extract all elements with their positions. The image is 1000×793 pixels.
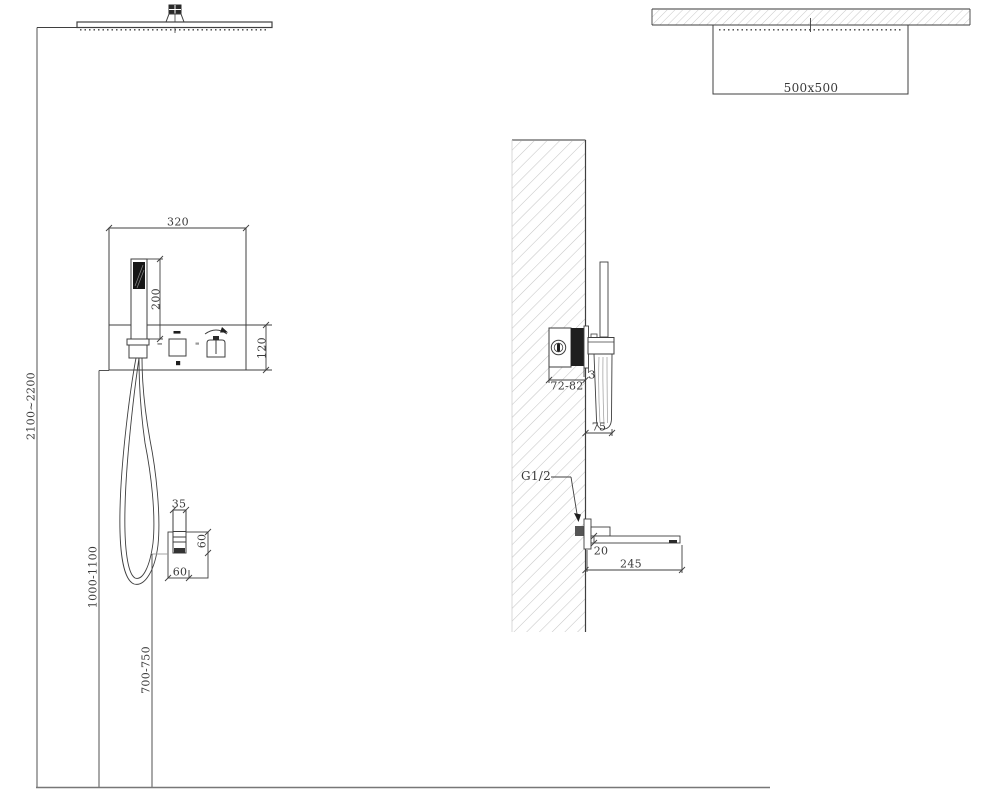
showerhead-front — [77, 5, 272, 33]
shower-installation-drawing: 320 200 120 2100~2200 1000-1100 700-750 … — [0, 0, 1000, 793]
dim-wall-embed-depth-label: 72-82 — [550, 381, 583, 392]
front-dimensions — [37, 28, 272, 788]
hose — [120, 358, 159, 584]
pipe-stub — [575, 526, 584, 536]
knob-tab — [213, 336, 219, 340]
spout-wall-plate — [584, 519, 591, 549]
side-view — [512, 140, 685, 632]
handshower-holder — [129, 345, 147, 358]
ceiling-hatch-band — [652, 9, 970, 25]
handshower-side — [588, 262, 614, 429]
hose-inner — [125, 358, 154, 578]
valve-dark-section — [571, 328, 584, 366]
dim-handshower-length-label: 200 — [151, 288, 162, 310]
dim-outlet-box-width-label: 60 — [173, 567, 188, 578]
spout-base-block — [591, 527, 610, 536]
button-mark-bottom — [176, 361, 180, 365]
dim-panel-height-range-label: 1000-1100 — [88, 546, 99, 608]
valve-keyhole — [557, 344, 560, 352]
holder-screw — [591, 334, 597, 338]
mixer-valve-side — [549, 326, 589, 368]
spout-aerator — [669, 540, 677, 543]
spout-side — [575, 519, 680, 549]
outlet-opening — [174, 548, 185, 553]
dim-outlet-box-height-label: 60 — [197, 534, 208, 549]
knob-arrow-head — [220, 327, 228, 333]
handshower-front — [127, 259, 149, 358]
dim-outlet-height-label: 700-750 — [141, 646, 152, 694]
button-mark-right — [196, 343, 200, 345]
handshower-wand-side — [600, 262, 608, 337]
dim-spout-length-label: 245 — [620, 559, 642, 570]
button-mark-top — [174, 331, 181, 334]
dim-trim-gap-label: 3 — [588, 370, 595, 381]
dim-panel-height-label: 120 — [257, 337, 268, 359]
front-view — [37, 5, 272, 787]
dim-showerhead-size-label: 500x500 — [784, 82, 839, 94]
showerhead-bar — [77, 22, 272, 28]
dim-outlet-nipple-width-label: 35 — [172, 499, 187, 510]
pipe-thread-label: G1/2 — [521, 470, 551, 482]
handshower-holder-flange — [127, 339, 149, 345]
diverter-button — [169, 339, 186, 356]
dim-handshower-projection-label: 75 — [592, 422, 607, 433]
dim-panel-width-label: 320 — [167, 217, 189, 228]
holder-bracket-side — [588, 338, 614, 355]
dim-showerhead-height-label: 2100~2200 — [26, 372, 37, 440]
button-mark-left — [158, 343, 163, 345]
spout-bar — [591, 536, 680, 543]
dim-spout-thickness-label: 20 — [594, 546, 609, 557]
